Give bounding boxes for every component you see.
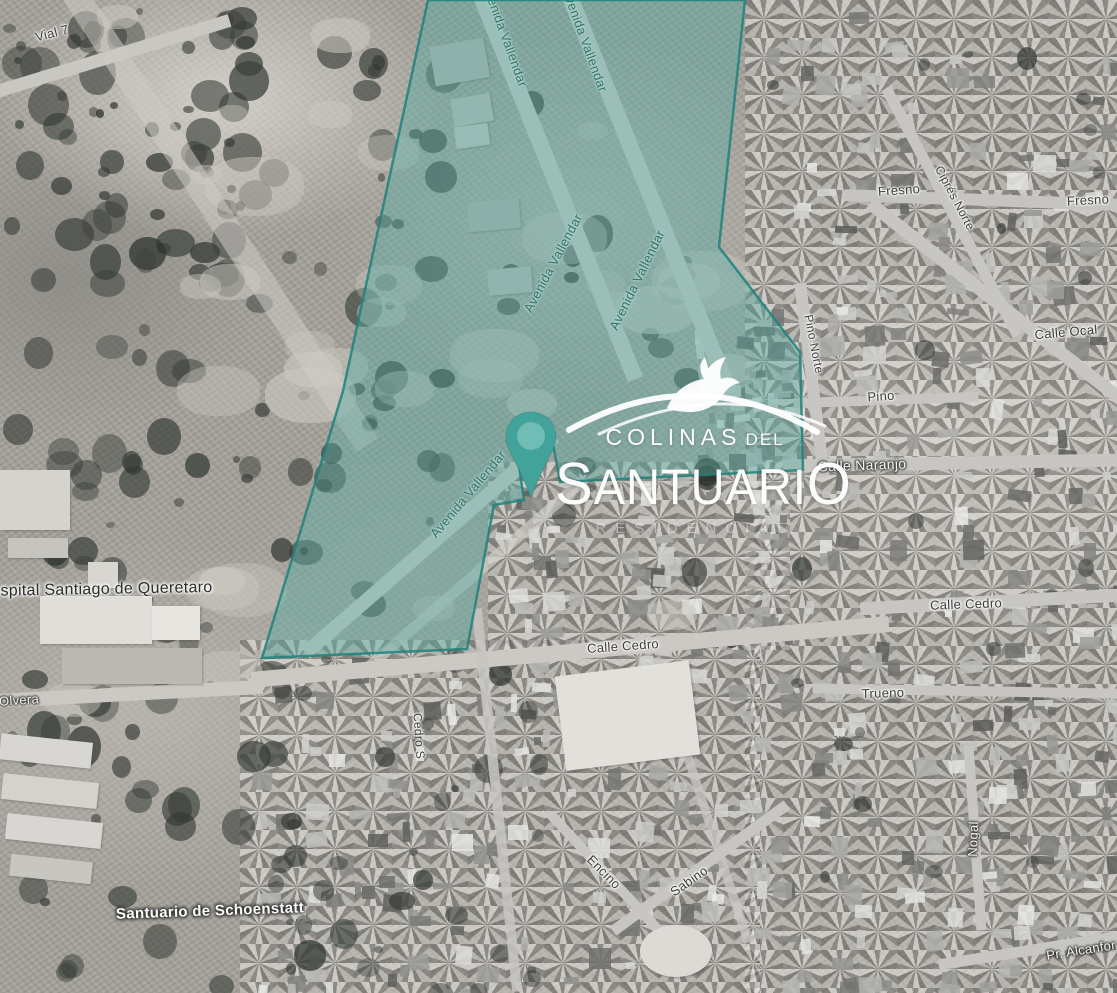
street-label-avenida-vallendar-mid-2: Avenida Vallendar (607, 228, 667, 332)
street-label-fresno-east: Fresno (1067, 192, 1110, 207)
street-label-avenida-vallendar-top-2: Avenida Vallendar (560, 0, 610, 94)
street-label-nogal: Nogal (966, 821, 980, 857)
street-label-avenida-vallendar-mid-1: Avenida Vallendar (522, 212, 585, 315)
brand-logo: COLINASDEL SANTUARIO RESIDENCIAL (555, 356, 835, 537)
street-label-trueno: Trueno (862, 686, 905, 700)
street-label-avenida-vallendar-top-1: Avenida Vallendar (480, 0, 530, 89)
pin-inner-circle (517, 422, 545, 450)
street-label-fresno-west: Fresno (877, 182, 920, 198)
logo-colinas: COLINAS (605, 424, 741, 450)
location-pin[interactable] (504, 410, 558, 502)
street-label-olvera: Olvera (0, 692, 39, 708)
logo-text-santuario: SANTUARIO (555, 449, 835, 518)
logo-text-residencial: RESIDENCIAL (555, 520, 835, 537)
street-label-avenida-vallendar-pin: Avenida Vallendar (428, 448, 508, 540)
street-label-cedro-sur: Cedro S (411, 713, 426, 760)
logo-text-colinas-del: COLINASDEL (555, 424, 835, 451)
street-label-calle-cedro-east: Calle Cedro (930, 596, 1002, 612)
logo-del: DEL (745, 430, 784, 449)
street-label-pino: Pino (867, 389, 895, 404)
satellite-map: Avenida VallendarAvenida VallendarAvenid… (0, 0, 1117, 993)
